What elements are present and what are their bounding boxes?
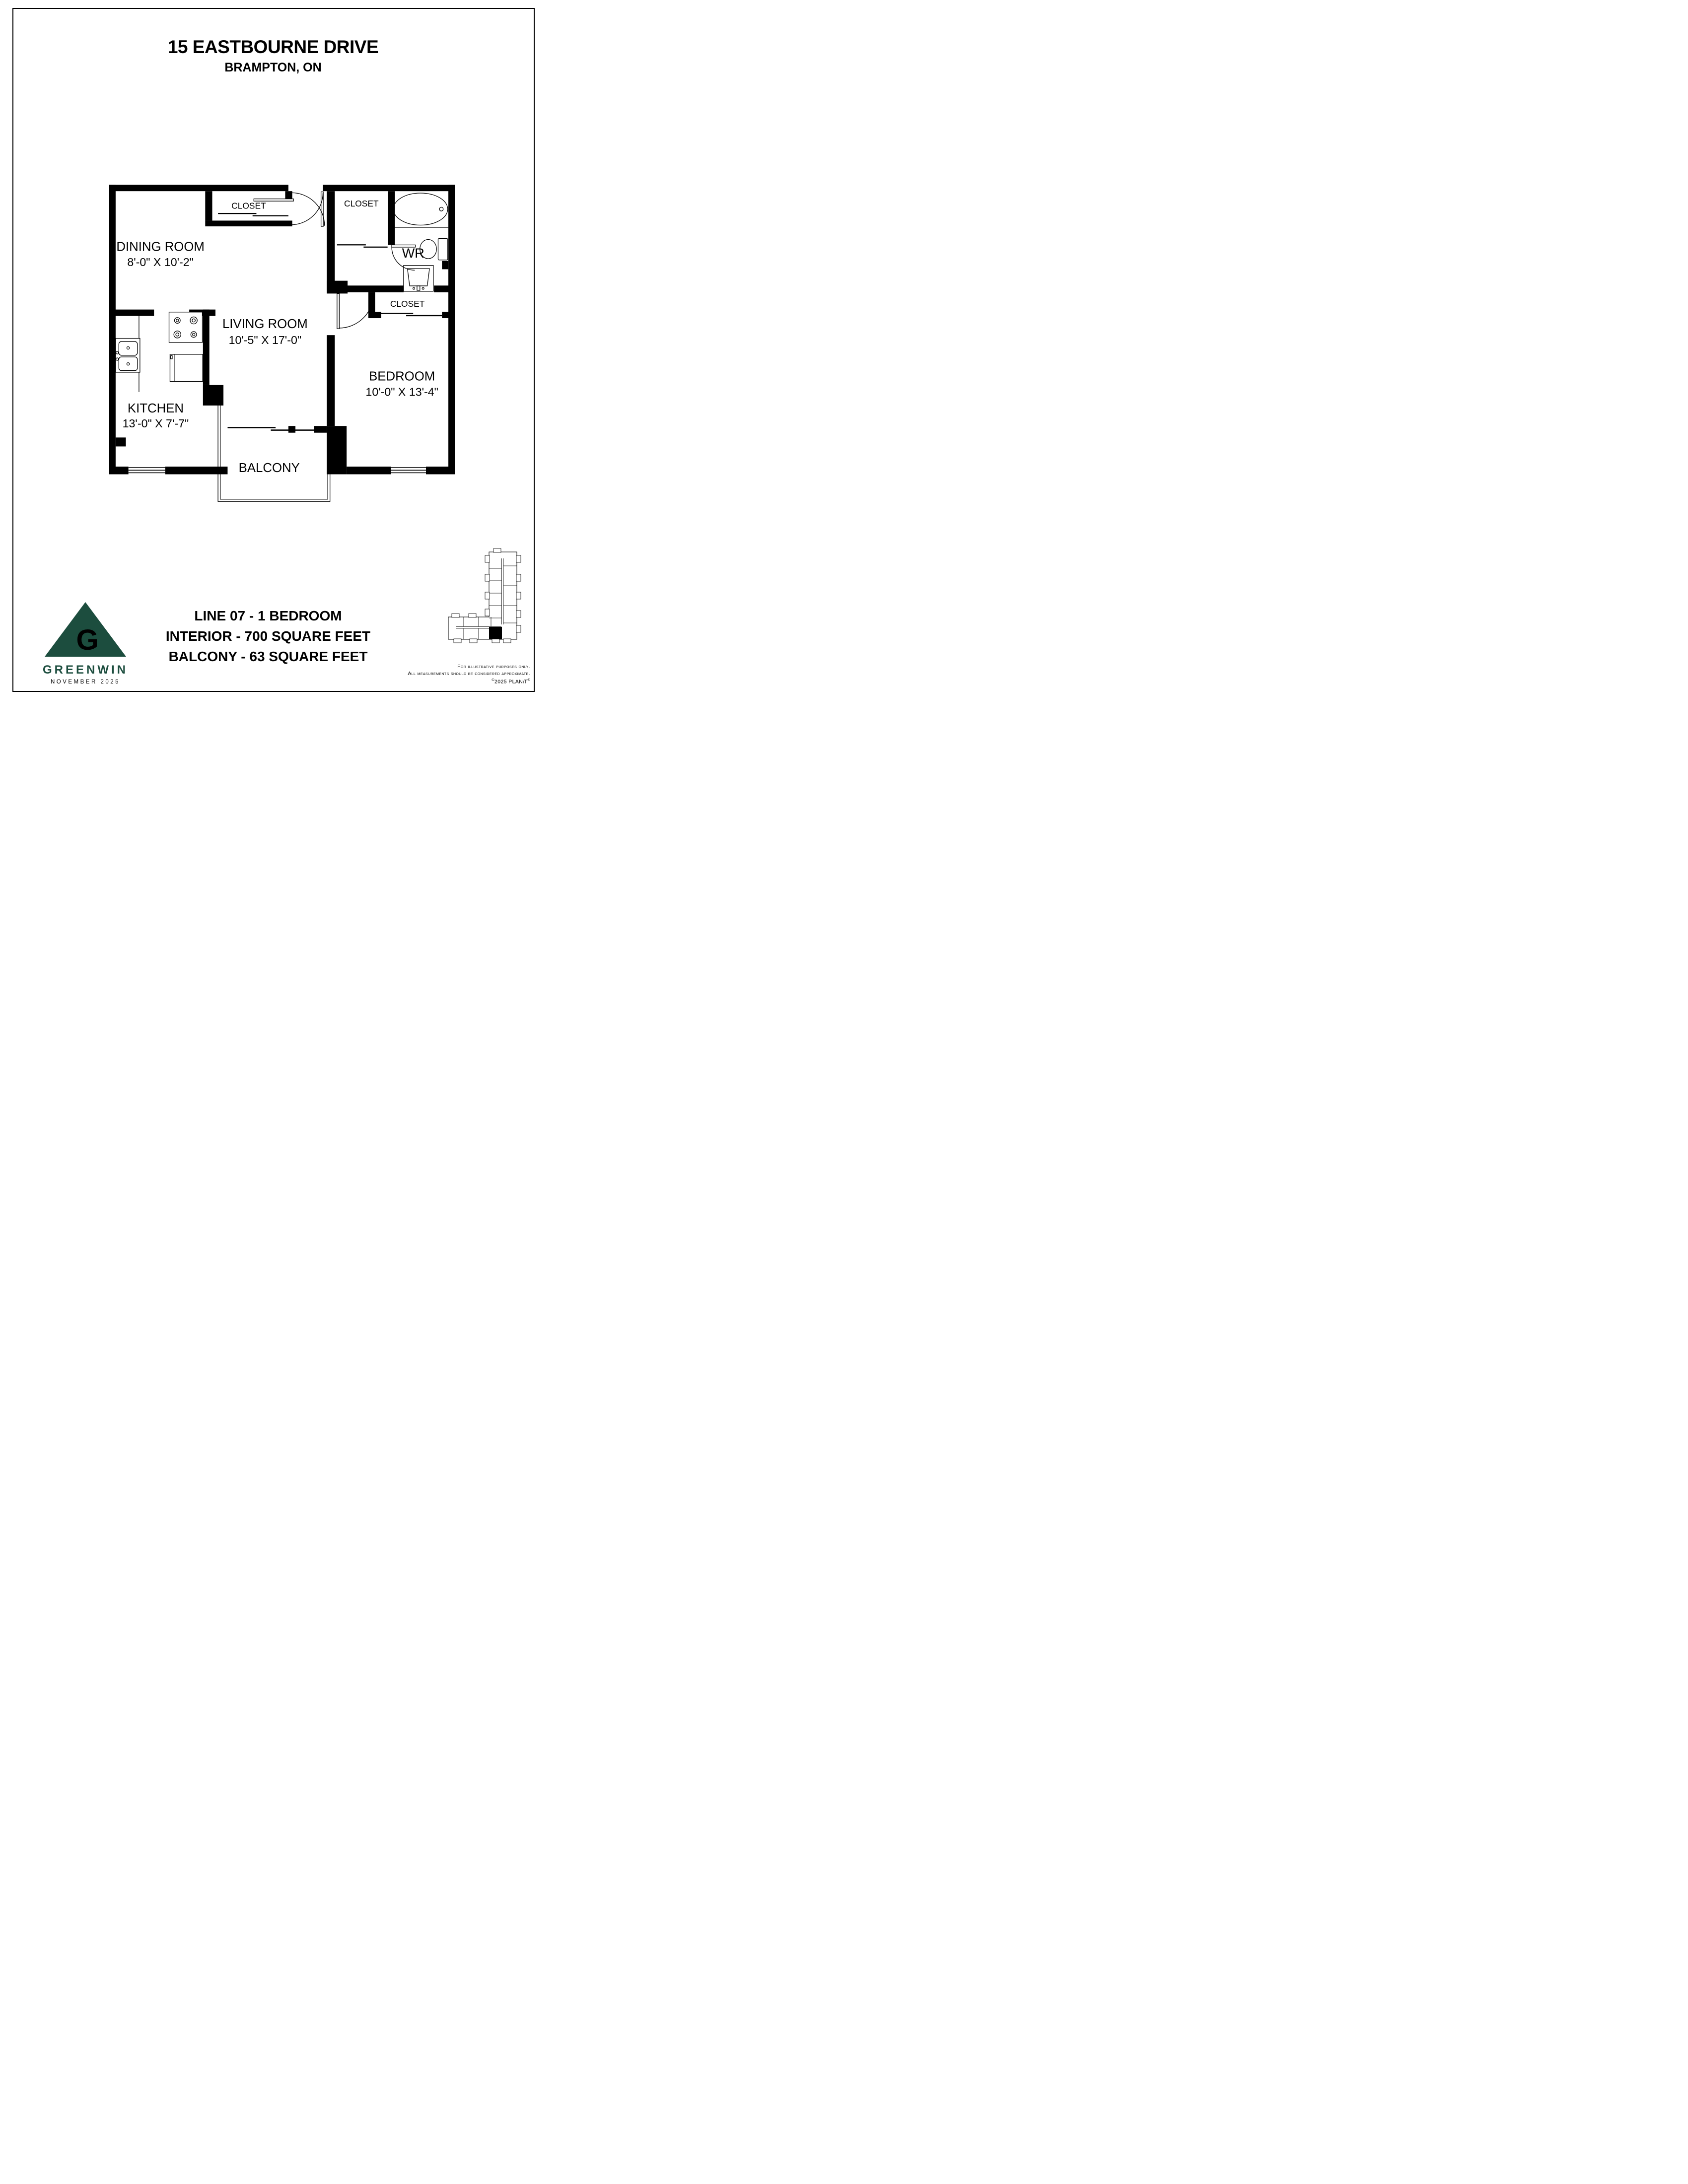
building-key-plan [434, 539, 535, 664]
disclaimer-line-2: All measurements should be considered ap… [408, 671, 530, 678]
keyplan-balconies [452, 548, 521, 643]
washroom-label: WR [402, 246, 424, 261]
bedroom-window-icon [391, 467, 426, 474]
disclaimer-line-1: For illustrative purposes only. [408, 664, 530, 671]
living-room-label: LIVING ROOM [222, 317, 308, 331]
balcony-label: BALCONY [239, 461, 300, 475]
page-subtitle: BRAMPTON, ON [0, 61, 546, 75]
disclaimer-copyright: ©2025 PLANiT® [408, 677, 530, 685]
greenwin-logo-icon: G [45, 602, 126, 658]
kitchen-window-icon [129, 467, 165, 474]
keyplan-current-unit [489, 627, 502, 639]
balcony-sliding-door-icon [227, 427, 314, 431]
bedroom-closet-slider-icon [378, 313, 442, 316]
brand-block: G GREENWIN NOVEMBER 2025 [30, 602, 141, 685]
logo-letter: G [76, 624, 98, 656]
brand-name: GREENWIN [30, 663, 141, 677]
kitchen-label: KITCHEN [128, 402, 184, 415]
entry-closet-label: CLOSET [231, 201, 266, 211]
floor-plan: DINING ROOM 8'-0" X 10'-2" CLOSET CLOSET… [109, 185, 455, 505]
entry-closet-shelf-icon [218, 213, 288, 216]
stove-icon [169, 312, 203, 342]
disclaimer: For illustrative purposes only. All meas… [408, 664, 530, 685]
floorplan-sheet: 15 EASTBOURNE DRIVE BRAMPTON, ON [0, 0, 546, 707]
brand-date: NOVEMBER 2025 [30, 679, 141, 685]
page-title: 15 EASTBOURNE DRIVE [0, 37, 546, 58]
hall-closet-shelf-icon [337, 244, 388, 248]
living-room-dims: 10'-5" X 17'-0" [229, 334, 301, 346]
balcony-railing [218, 406, 330, 501]
kitchen-dims: 13'-0" X 7'-7" [123, 417, 189, 430]
bedroom-dims: 10'-0" X 13'-4" [365, 386, 438, 399]
kitchen-sink-icon [116, 339, 140, 372]
bedroom-label: BEDROOM [369, 370, 435, 384]
hall-closet-label: CLOSET [344, 199, 379, 208]
dining-room-label: DINING ROOM [116, 240, 205, 254]
dining-room-dims: 8'-0" X 10'-2" [127, 256, 194, 269]
bathtub-icon [393, 193, 448, 227]
bedroom-closet-label: CLOSET [390, 299, 425, 309]
bedroom-door-icon [337, 293, 373, 329]
fridge-icon [170, 354, 203, 382]
